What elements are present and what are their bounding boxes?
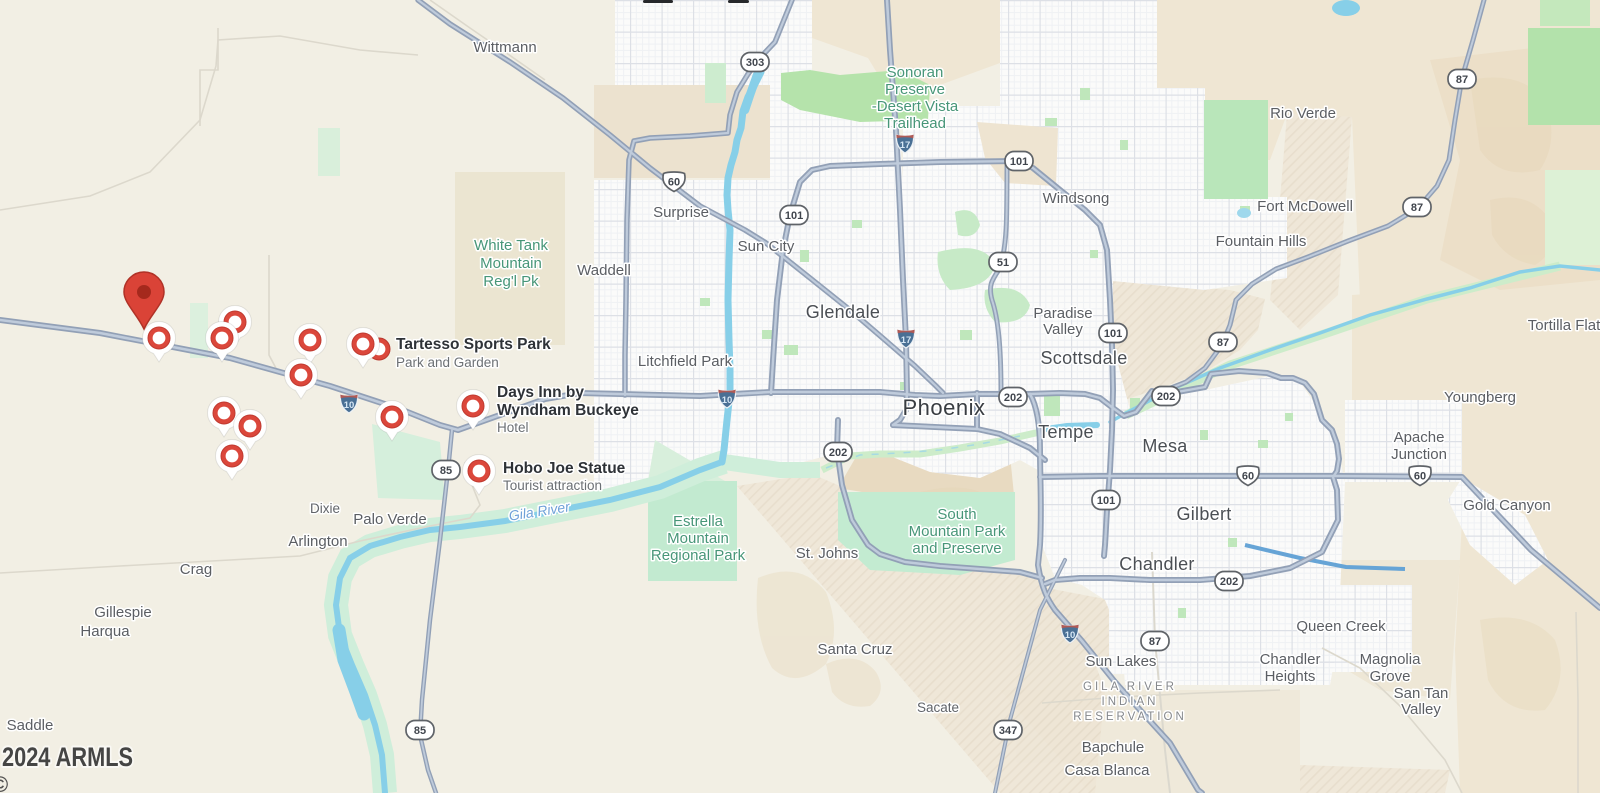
svg-text:©: ©	[0, 772, 8, 793]
svg-text:Trailhead: Trailhead	[884, 115, 946, 132]
svg-text:Phoenix: Phoenix	[902, 395, 985, 420]
svg-text:Junction: Junction	[1391, 446, 1447, 463]
svg-text:-Desert Vista: -Desert Vista	[872, 98, 959, 115]
svg-text:Wyndham Buckeye: Wyndham Buckeye	[497, 402, 639, 419]
svg-text:Days Inn by: Days Inn by	[497, 384, 584, 401]
svg-text:Palo Verde: Palo Verde	[353, 511, 426, 528]
svg-text:Mountain: Mountain	[480, 255, 542, 272]
svg-text:Dixie: Dixie	[310, 501, 340, 516]
svg-text:Gold Canyon: Gold Canyon	[1463, 497, 1551, 514]
svg-text:Estrella: Estrella	[673, 513, 724, 530]
svg-text:Grove: Grove	[1370, 668, 1411, 685]
svg-text:Wittmann: Wittmann	[473, 39, 536, 56]
svg-text:Hotel: Hotel	[497, 420, 529, 435]
svg-text:Fountain Hills: Fountain Hills	[1216, 233, 1307, 250]
svg-text:Park and Garden: Park and Garden	[396, 355, 499, 370]
svg-text:Sun City: Sun City	[738, 238, 795, 255]
svg-text:Gilbert: Gilbert	[1176, 504, 1231, 524]
svg-text:Reg'l Pk: Reg'l Pk	[483, 273, 539, 290]
svg-text:Glendale: Glendale	[806, 302, 880, 322]
svg-text:and Preserve: and Preserve	[912, 540, 1001, 557]
svg-text:INDIAN: INDIAN	[1102, 696, 1159, 708]
svg-text:Sonoran: Sonoran	[887, 64, 944, 81]
svg-text:Tempe: Tempe	[1038, 422, 1094, 442]
svg-text:87: 87	[1217, 337, 1229, 349]
svg-text:Waddell: Waddell	[577, 262, 631, 279]
svg-text:Saddle: Saddle	[7, 717, 54, 734]
svg-text:Sacate: Sacate	[917, 700, 959, 715]
svg-text:Santa Cruz: Santa Cruz	[817, 641, 892, 658]
svg-text:202: 202	[1157, 391, 1175, 403]
svg-text:60: 60	[1242, 471, 1254, 483]
svg-text:347: 347	[999, 725, 1017, 737]
svg-text:87: 87	[1411, 202, 1423, 214]
svg-text:GILA RIVER: GILA RIVER	[1083, 681, 1177, 693]
svg-text:Tartesso Sports Park: Tartesso Sports Park	[396, 336, 551, 353]
svg-text:Casa Blanca: Casa Blanca	[1064, 762, 1150, 779]
svg-text:Mountain Park: Mountain Park	[909, 523, 1006, 540]
svg-text:Apache: Apache	[1394, 429, 1445, 446]
svg-text:Magnolia: Magnolia	[1360, 651, 1422, 668]
svg-text:Bapchule: Bapchule	[1082, 739, 1145, 756]
svg-text:Chandler: Chandler	[1119, 554, 1194, 574]
svg-text:Valley: Valley	[1401, 701, 1441, 718]
svg-text:10: 10	[344, 400, 355, 411]
svg-text:Litchfield Park: Litchfield Park	[638, 353, 733, 370]
svg-text:60: 60	[668, 177, 680, 189]
svg-text:101: 101	[1097, 495, 1115, 507]
svg-text:Windsong: Windsong	[1043, 190, 1110, 207]
svg-text:202: 202	[829, 447, 847, 459]
svg-text:Fort McDowell: Fort McDowell	[1257, 198, 1353, 215]
svg-text:2024 ARMLS: 2024 ARMLS	[2, 742, 133, 772]
svg-text:Surprise: Surprise	[653, 204, 709, 221]
svg-text:202: 202	[1220, 576, 1238, 588]
svg-text:St. Johns: St. Johns	[796, 545, 859, 562]
svg-text:Tourist attraction: Tourist attraction	[503, 478, 602, 493]
svg-text:87: 87	[1456, 74, 1468, 86]
svg-text:Hobo Joe Statue: Hobo Joe Statue	[503, 460, 626, 477]
svg-text:17: 17	[901, 335, 912, 346]
svg-text:85: 85	[440, 465, 452, 477]
svg-text:Crag: Crag	[180, 561, 213, 578]
svg-text:Tortilla Flat: Tortilla Flat	[1528, 317, 1600, 334]
svg-text:Gillespie: Gillespie	[94, 604, 152, 621]
svg-text:Heights: Heights	[1265, 668, 1316, 685]
svg-text:101: 101	[1010, 156, 1028, 168]
svg-text:Mountain: Mountain	[667, 530, 729, 547]
svg-text:17: 17	[900, 140, 911, 151]
svg-text:RESERVATION: RESERVATION	[1073, 711, 1187, 723]
svg-text:87: 87	[1149, 636, 1161, 648]
svg-text:Preserve: Preserve	[885, 81, 945, 98]
svg-text:South: South	[937, 506, 976, 523]
svg-text:White Tank: White Tank	[474, 237, 548, 254]
svg-text:Youngberg: Youngberg	[1444, 389, 1516, 406]
svg-text:60: 60	[1414, 471, 1426, 483]
svg-text:10: 10	[722, 395, 733, 406]
svg-text:101: 101	[785, 210, 803, 222]
svg-text:Chandler: Chandler	[1260, 651, 1321, 668]
svg-text:85: 85	[414, 725, 426, 737]
svg-text:51: 51	[997, 257, 1009, 269]
svg-text:Paradise: Paradise	[1033, 305, 1092, 322]
svg-text:Regional Park: Regional Park	[651, 547, 746, 564]
svg-text:Scottsdale: Scottsdale	[1040, 348, 1127, 368]
svg-text:Harqua: Harqua	[80, 623, 130, 640]
svg-text:Sun Lakes: Sun Lakes	[1086, 653, 1157, 670]
svg-text:Mesa: Mesa	[1142, 436, 1188, 456]
svg-text:303: 303	[746, 57, 764, 69]
svg-text:San Tan: San Tan	[1394, 685, 1449, 702]
svg-text:Rio Verde: Rio Verde	[1270, 105, 1336, 122]
svg-text:Valley: Valley	[1043, 321, 1083, 338]
svg-text:Arlington: Arlington	[288, 533, 347, 550]
svg-text:202: 202	[1004, 392, 1022, 404]
svg-text:101: 101	[1104, 328, 1122, 340]
svg-text:Queen Creek: Queen Creek	[1296, 618, 1386, 635]
svg-text:10: 10	[1065, 630, 1076, 641]
